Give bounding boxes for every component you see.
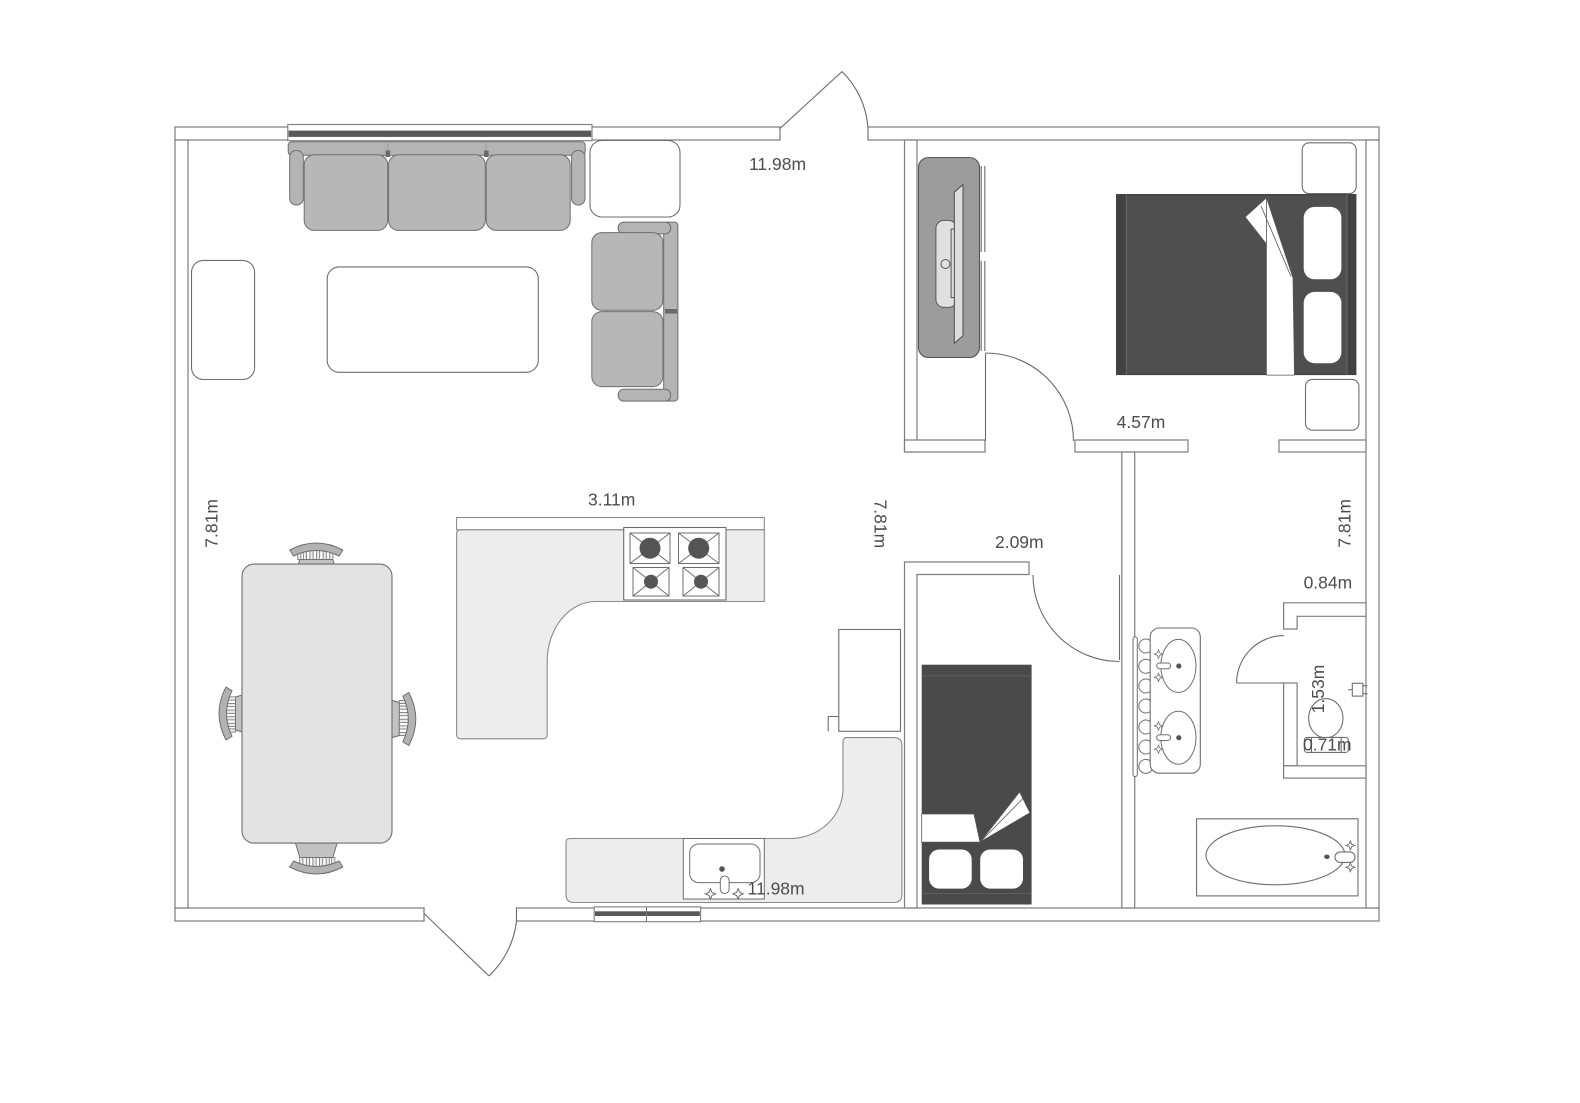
svg-text:2.09m: 2.09m bbox=[995, 532, 1044, 552]
svg-text:11.98m: 11.98m bbox=[748, 879, 805, 899]
svg-text:11.98m: 11.98m bbox=[749, 154, 806, 174]
svg-text:3.11m: 3.11m bbox=[588, 490, 635, 510]
svg-text:7.81m: 7.81m bbox=[1334, 499, 1354, 548]
svg-text:4.57m: 4.57m bbox=[1117, 412, 1166, 432]
svg-text:7.81m: 7.81m bbox=[201, 499, 221, 548]
svg-text:0.71m: 0.71m bbox=[1303, 735, 1352, 755]
svg-text:1.53m: 1.53m bbox=[1308, 665, 1328, 714]
svg-text:0.84m: 0.84m bbox=[1304, 573, 1353, 593]
svg-text:7.81m: 7.81m bbox=[871, 500, 891, 549]
